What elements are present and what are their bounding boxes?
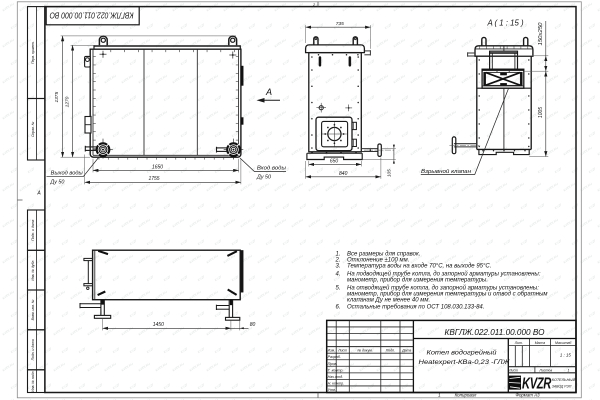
svg-text:1650: 1650 xyxy=(152,164,163,170)
svg-text:Вход воды: Вход воды xyxy=(257,165,286,171)
svg-text:A: A xyxy=(265,87,272,97)
svg-text:клапанам Ду не менее 40 мм.: клапанам Ду не менее 40 мм. xyxy=(347,297,430,303)
svg-text:Разраб.: Разраб. xyxy=(328,355,341,359)
svg-text:Взам. инв. №: Взам. инв. № xyxy=(31,299,35,320)
svg-text:A ( 1 : 15 ): A ( 1 : 15 ) xyxy=(486,18,524,27)
svg-text:КОТЕЛЬНЫЙ: КОТЕЛЬНЫЙ xyxy=(552,377,576,382)
svg-text:KVZR: KVZR xyxy=(522,376,552,393)
svg-text:1375: 1375 xyxy=(54,92,60,103)
svg-text:5.: 5. xyxy=(335,285,340,291)
svg-text:Копировал: Копировал xyxy=(455,393,477,398)
svg-text:А: А xyxy=(36,191,41,197)
svg-text:1270: 1270 xyxy=(65,96,71,107)
svg-text:Лист: Лист xyxy=(508,368,518,372)
svg-text:Изм.: Изм. xyxy=(328,349,335,353)
svg-text:На подводящей трубе котла, до: На подводящей трубе котла, до запорной а… xyxy=(347,270,541,277)
svg-text:4.: 4. xyxy=(335,271,340,277)
svg-text:На отводящей трубе котла, до з: На отводящей трубе котла, до запорной ар… xyxy=(347,284,539,291)
svg-text:Дата: Дата xyxy=(401,349,411,353)
svg-text:Heatexpert-КВа-0,23 -ГЛЖ: Heatexpert-КВа-0,23 -ГЛЖ xyxy=(419,359,510,366)
svg-text:КВГЛЖ.022.011.00.000 ВО: КВГЛЖ.022.011.00.000 ВО xyxy=(445,327,546,337)
svg-text:1450: 1450 xyxy=(153,322,164,328)
svg-text:Инв. № подл.: Инв. № подл. xyxy=(31,371,35,392)
svg-text:КВГЛЖ.022.011.00.000 ВО: КВГЛЖ.022.011.00.000 ВО xyxy=(50,11,134,20)
svg-text:80: 80 xyxy=(250,322,256,328)
svg-text:Подп. и дата: Подп. и дата xyxy=(31,339,35,360)
svg-text:1: 1 xyxy=(568,368,570,372)
svg-text:Масса: Масса xyxy=(535,341,545,345)
svg-text:1755: 1755 xyxy=(148,176,159,182)
svg-text:Подп.: Подп. xyxy=(386,349,395,353)
svg-text:Перв. примен.: Перв. примен. xyxy=(31,41,35,64)
svg-text:№ докум.: № докум. xyxy=(357,349,372,353)
svg-text:манометр, прибор для измерения: манометр, прибор для измерения температу… xyxy=(347,277,488,283)
svg-text:Ду 50: Ду 50 xyxy=(256,174,271,180)
svg-text:Взрывной клапан: Взрывной клапан xyxy=(421,168,471,175)
svg-text:105: 105 xyxy=(386,169,391,177)
svg-text:Остальные требования по ОСТ 10: Остальные требования по ОСТ 108.030.133-… xyxy=(347,304,484,310)
svg-text:Н. контр.: Н. контр. xyxy=(328,381,345,385)
svg-text:Лист: Лист xyxy=(337,349,347,353)
svg-text:650: 650 xyxy=(330,159,339,165)
svg-text:Формат А3: Формат А3 xyxy=(515,393,540,398)
svg-text:1005: 1005 xyxy=(538,107,544,118)
svg-text:Лит.: Лит. xyxy=(514,341,523,345)
svg-text:735: 735 xyxy=(336,21,344,27)
svg-text:ЗАВОД РЭП: ЗАВОД РЭП xyxy=(552,384,572,389)
svg-text:Масштаб: Масштаб xyxy=(555,341,572,345)
svg-text:1 : 15: 1 : 15 xyxy=(560,353,572,358)
svg-text:Котел водогрейный: Котел водогрейный xyxy=(427,350,498,357)
svg-text:Справ. №: Справ. № xyxy=(31,121,35,137)
svg-text:Подп. и дата: Подп. и дата xyxy=(31,219,35,240)
svg-text:150x250: 150x250 xyxy=(538,22,544,45)
svg-text:3.: 3. xyxy=(335,263,340,269)
svg-text:Утв.: Утв. xyxy=(328,388,336,392)
svg-text:Нач.отд.: Нач.отд. xyxy=(328,375,344,379)
svg-text:Т. контр.: Т. контр. xyxy=(328,368,344,372)
svg-text:Инв. № дубл.: Инв. № дубл. xyxy=(31,260,35,281)
svg-text:Температура воды на входе 70°С: Температура воды на входе 70°С, на выход… xyxy=(347,263,491,269)
svg-text:6.: 6. xyxy=(335,304,340,310)
svg-text:Пров.: Пров. xyxy=(328,362,338,366)
svg-text:Листов: Листов xyxy=(538,368,552,372)
svg-text:840: 840 xyxy=(339,171,348,177)
svg-text:Ду 50: Ду 50 xyxy=(49,180,64,186)
svg-text:Выход воды: Выход воды xyxy=(51,171,83,177)
